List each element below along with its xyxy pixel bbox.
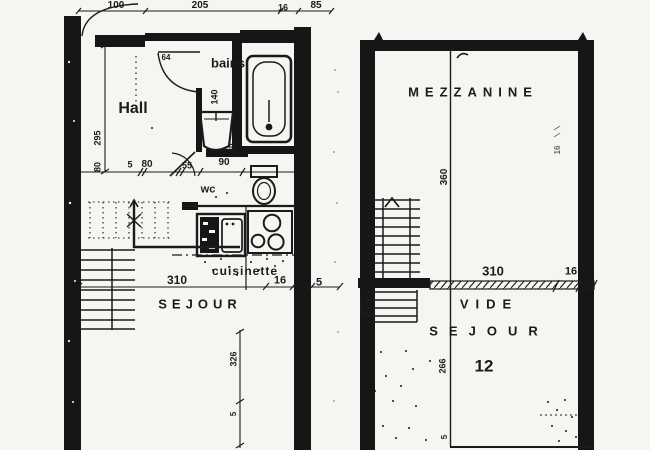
- label-dim-bottom-5: 5: [316, 278, 322, 289]
- label-room-sejour: SEJOUR: [158, 298, 241, 311]
- labels-layer: 1002051685Hallbains14029580580559064wc30…: [0, 0, 650, 450]
- label-dim-mid-55: 55: [182, 162, 192, 171]
- label-dim-right-wall-16: 16: [554, 146, 562, 155]
- label-dim-360: 360: [440, 169, 450, 186]
- label-dim-top-205: 205: [192, 1, 209, 11]
- label-dim-bains-140: 140: [211, 89, 220, 104]
- label-dim-left-295: 295: [94, 130, 103, 145]
- label-dim-top-16: 16: [278, 4, 288, 13]
- label-dim-wc-30: 30: [228, 144, 236, 153]
- label-dim-door-64: 64: [162, 54, 171, 62]
- label-dim-266: 266: [439, 358, 448, 373]
- label-room-cuisinette: cuisinette: [212, 265, 278, 277]
- label-dim-top-100: 100: [108, 1, 125, 11]
- label-dim-right-16: 16: [565, 267, 577, 278]
- label-dim-bottom-16: 16: [274, 276, 286, 287]
- label-dim-top-85: 85: [310, 1, 321, 11]
- label-room-wc: wc: [201, 185, 216, 196]
- label-dim-right-310: 310: [482, 265, 504, 278]
- label-dim-mid-5: 5: [127, 161, 132, 170]
- label-dim-right-5: 5: [441, 435, 449, 439]
- label-room-sejour-right: SEJOUR: [429, 325, 548, 338]
- label-room-vide: VIDE: [460, 298, 518, 311]
- label-dim-mid-90: 90: [218, 158, 229, 168]
- label-room-hall: Hall: [118, 101, 147, 117]
- label-dim-326: 326: [230, 351, 239, 366]
- scanned-floorplan-page: 1002051685Hallbains14029580580559064wc30…: [0, 0, 650, 450]
- label-room-mezzanine: MEZZANINE: [408, 86, 538, 99]
- label-dim-left-80: 80: [94, 162, 103, 172]
- label-room-bains: bains: [211, 57, 245, 70]
- label-dim-326-5: 5: [230, 412, 238, 416]
- label-dim-bottom-310: 310: [167, 274, 187, 286]
- label-dim-mid-80: 80: [141, 160, 152, 170]
- label-area-12: 12: [475, 358, 494, 375]
